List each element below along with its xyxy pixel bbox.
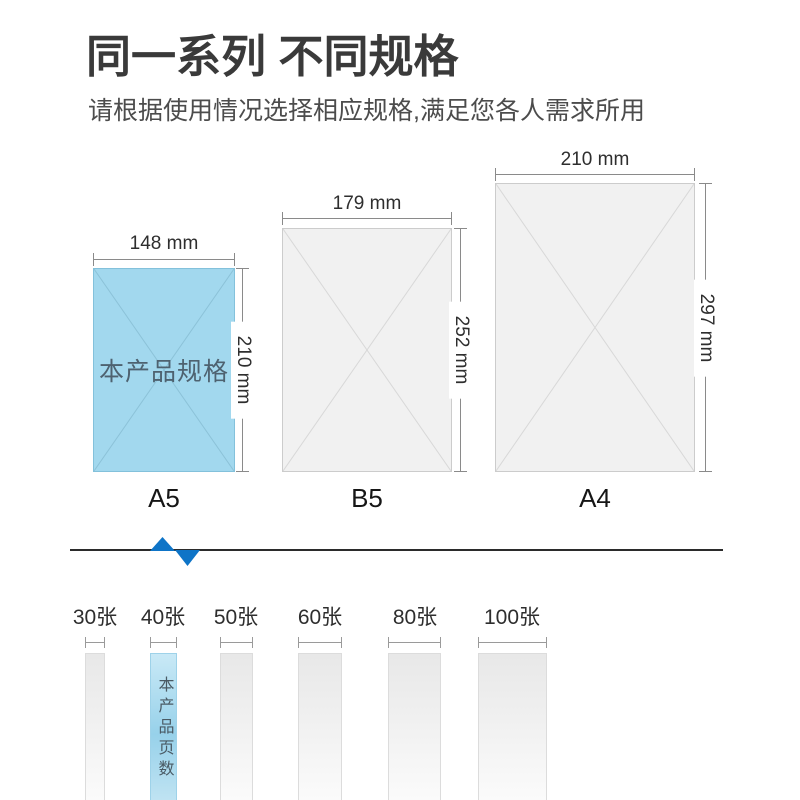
paper-b5 xyxy=(282,228,452,472)
sheet-count-bracket-60 xyxy=(298,637,342,648)
a5-height-dimension-line: 210 mm xyxy=(236,268,249,472)
sheet-count-bar-30 xyxy=(85,653,105,800)
a4-height-dimension-line: 297 mm xyxy=(699,183,712,472)
dimension-line xyxy=(94,259,234,260)
a4-size-label: A4 xyxy=(495,483,695,514)
a5-width-label: 148 mm xyxy=(93,233,235,255)
a4-diagonal-cross-icon xyxy=(496,184,694,471)
page-subtitle: 请根据使用情况选择相应规格,满足您各人需求所用 xyxy=(88,96,645,126)
bar-product-note: 本产品页数 xyxy=(152,676,176,781)
sheet-count-bar-50 xyxy=(220,653,253,800)
dimension-line xyxy=(221,642,252,643)
dimension-line xyxy=(479,642,546,643)
dimension-line xyxy=(389,642,440,643)
b5-size-label: B5 xyxy=(282,483,452,514)
dimension-line xyxy=(151,642,176,643)
a4-width-dimension-line xyxy=(495,168,695,181)
sheet-count-bracket-30 xyxy=(85,637,105,648)
paper-a4 xyxy=(495,183,695,472)
sheet-count-bar-40: 本产品页数 xyxy=(150,653,177,800)
sheet-count-bracket-80 xyxy=(388,637,441,648)
pointer-triangles-icon xyxy=(149,537,201,567)
dimension-line xyxy=(299,642,341,643)
a4-height-label: 297 mm xyxy=(694,279,718,376)
sheet-count-bar-80 xyxy=(388,653,441,800)
paper-a5: 本产品规格 xyxy=(93,268,235,472)
sheet-count-label-100: 100张 xyxy=(452,601,572,631)
b5-width-dimension-line xyxy=(282,212,452,225)
product-spec-infographic: 同一系列 不同规格 请根据使用情况选择相应规格,满足您各人需求所用 148 mm… xyxy=(0,0,800,800)
dimension-line xyxy=(283,218,451,219)
sheet-count-bracket-40 xyxy=(150,637,177,648)
b5-height-label: 252 mm xyxy=(449,302,473,399)
sheet-count-bracket-50 xyxy=(220,637,253,648)
a5-width-dimension-line xyxy=(93,253,235,266)
a5-product-note: 本产品规格 xyxy=(94,352,234,388)
sheet-count-bracket-100 xyxy=(478,637,547,648)
b5-diagonal-cross-icon xyxy=(283,229,451,471)
b5-height-dimension-line: 252 mm xyxy=(454,228,467,472)
page-title: 同一系列 不同规格 xyxy=(86,30,459,84)
dimension-line xyxy=(496,174,694,175)
sheet-count-bar-60 xyxy=(298,653,342,800)
dimension-line xyxy=(86,642,104,643)
a5-size-label: A5 xyxy=(93,483,235,514)
a5-height-label: 210 mm xyxy=(231,322,255,419)
sheet-count-bar-100 xyxy=(478,653,547,800)
